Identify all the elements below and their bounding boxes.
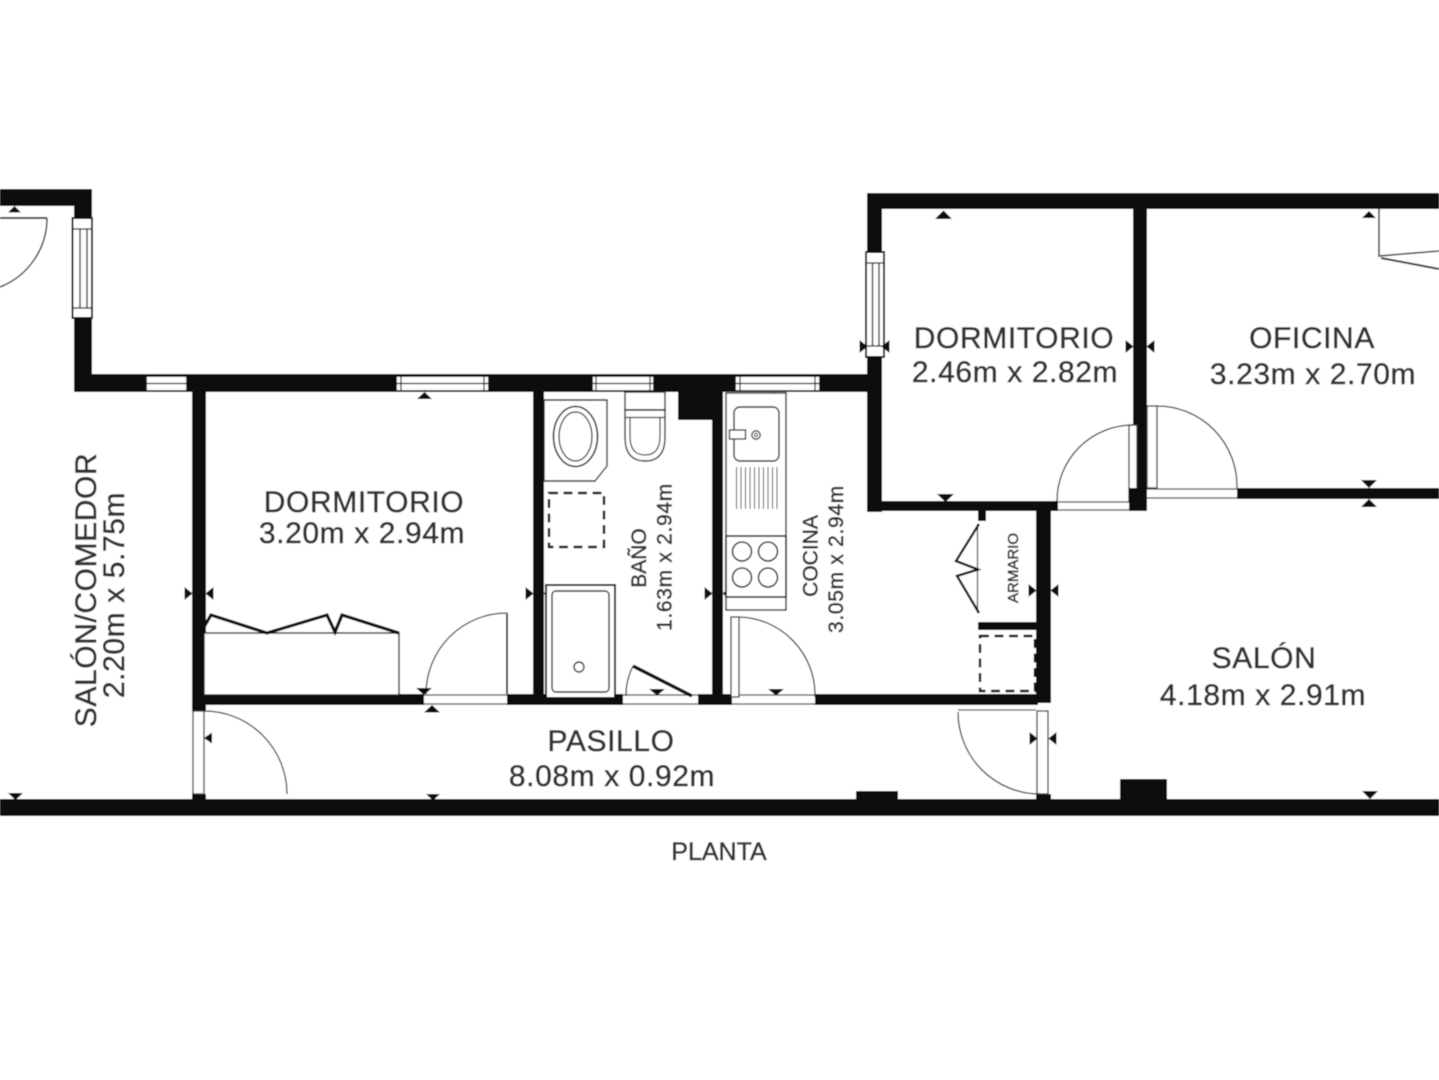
svg-text:3.20m x 2.94m: 3.20m x 2.94m (259, 517, 465, 550)
svg-text:OFICINA: OFICINA (1249, 322, 1375, 355)
svg-text:4.18m x 2.91m: 4.18m x 2.91m (1160, 679, 1366, 712)
svg-text:DORMITORIO: DORMITORIO (264, 486, 464, 519)
svg-text:2.20m x 5.75m: 2.20m x 5.75m (98, 492, 131, 698)
svg-text:ARMARIO: ARMARIO (1005, 533, 1022, 603)
svg-text:3.23m x 2.70m: 3.23m x 2.70m (1210, 358, 1416, 391)
svg-text:3.05m x 2.94m: 3.05m x 2.94m (825, 485, 848, 633)
svg-text:BAÑO: BAÑO (627, 528, 651, 588)
svg-text:SALÓN: SALÓN (1212, 642, 1317, 675)
svg-text:COCINA: COCINA (800, 515, 823, 597)
svg-text:8.08m x 0.92m: 8.08m x 0.92m (509, 760, 715, 793)
svg-text:1.63m x 2.94m: 1.63m x 2.94m (654, 483, 677, 631)
svg-text:2.46m x 2.82m: 2.46m x 2.82m (912, 356, 1118, 389)
svg-text:PLANTA: PLANTA (671, 838, 767, 866)
svg-text:DORMITORIO: DORMITORIO (914, 322, 1114, 355)
svg-text:PASILLO: PASILLO (547, 725, 674, 758)
